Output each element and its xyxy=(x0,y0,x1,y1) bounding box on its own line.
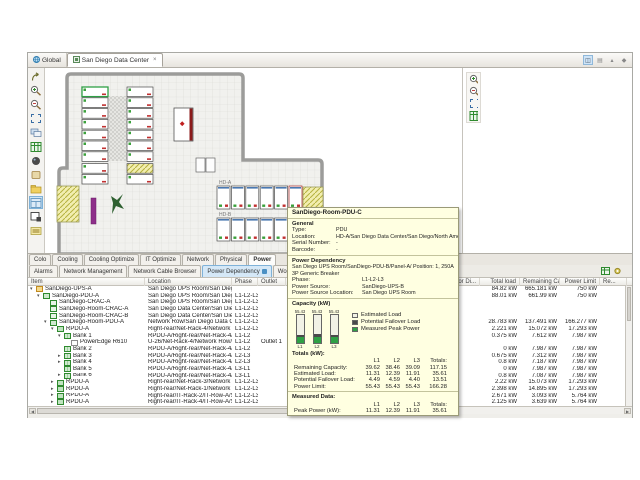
phase-cell: L1-L2-L3 xyxy=(232,399,258,406)
location-cell: San Diego UPS Room/San Diego/... xyxy=(145,293,232,300)
power-limit-cell: 7.987 kW xyxy=(560,366,600,373)
field-label: Serial Number: xyxy=(292,240,336,247)
vertical-scrollbar-thumb[interactable] xyxy=(627,287,631,321)
rack[interactable] xyxy=(82,87,108,97)
crac-icon xyxy=(50,306,57,312)
total-load-cell xyxy=(480,306,520,313)
remaining-ca-cell xyxy=(520,313,560,320)
outlet-cell xyxy=(258,299,286,306)
re-cell xyxy=(600,293,627,300)
phase-cell: L1-L2-L3 xyxy=(232,379,258,386)
rpdu-icon xyxy=(57,386,64,392)
tab-label: Global xyxy=(42,57,61,64)
layout-icon[interactable] xyxy=(29,196,43,209)
bank-icon xyxy=(64,373,71,379)
close-tab-icon[interactable]: × xyxy=(153,57,157,63)
row-label-hda: HD-A xyxy=(219,180,232,186)
item-cell: ▾SanDiego-UPS-A xyxy=(28,286,145,293)
field-value: - xyxy=(336,247,338,254)
rack[interactable] xyxy=(246,218,259,241)
power-limit-cell: 7.987 kW xyxy=(560,359,600,366)
rack[interactable] xyxy=(231,186,244,209)
tag-icon[interactable] xyxy=(29,168,43,181)
item-label: SanDiego-Room-PDU-A xyxy=(59,319,124,326)
rack[interactable] xyxy=(231,218,244,241)
re-cell xyxy=(600,386,627,393)
outlet-cell xyxy=(258,386,286,393)
busway-strip xyxy=(91,198,96,224)
category-tab-cooling[interactable]: Cooling xyxy=(52,254,82,265)
rack[interactable] xyxy=(82,164,108,174)
outlet-cell xyxy=(258,399,286,406)
remaining-ca-cell: 7.187 kW xyxy=(520,359,560,366)
item-cell: PowerEdge R610 xyxy=(28,339,145,346)
tooltip-field: Type:PDU xyxy=(292,227,454,234)
field-value: L1-L2-L3 xyxy=(362,277,384,284)
location-cell: Right-rear/IT-Rack-2/IT-Row-A/Sa... xyxy=(145,393,232,400)
mini-cell: 35.61 xyxy=(420,408,447,414)
field-label: Location: xyxy=(292,234,336,241)
total-load-cell: 88.01 kW xyxy=(480,293,520,300)
outlet-cell xyxy=(258,286,286,293)
phase-cell: L1-L2 xyxy=(232,333,258,340)
rack[interactable] xyxy=(82,109,108,119)
outlet-cell xyxy=(258,319,286,326)
item-cell: ▸Bank 4 xyxy=(28,359,145,366)
vertical-scrollbar[interactable] xyxy=(625,286,632,406)
rpdu-icon xyxy=(57,326,64,332)
rack[interactable] xyxy=(82,141,108,151)
phase-cell xyxy=(232,286,258,293)
capacity-gauge-l3: 55.43L3 xyxy=(328,309,340,350)
remaining-ca-cell: 137.491 kW xyxy=(520,319,560,326)
zoom-in-icon[interactable] xyxy=(29,84,43,97)
remaining-ca-cell: 7.987 kW xyxy=(520,366,560,373)
minimap-toolbar xyxy=(466,72,481,123)
legend-label: Estimated Load xyxy=(361,312,401,319)
item-label: Bank 5 xyxy=(73,366,92,373)
view-controls: ◫ ▤ ▴ ◆ xyxy=(583,55,629,65)
zoom-fit-icon[interactable] xyxy=(29,112,43,125)
rack[interactable] xyxy=(275,218,288,241)
re-cell xyxy=(600,359,627,366)
rack[interactable] xyxy=(127,164,153,174)
tooltip-section-capacity: Capacity (kW) xyxy=(292,301,454,308)
tooltip: SanDiego-Room-PDU-C General Type:PDULoca… xyxy=(287,207,459,416)
mini-cell: 55.43 xyxy=(380,384,400,390)
category-tab-power[interactable]: Power xyxy=(248,254,276,265)
re-cell xyxy=(600,346,627,353)
legend-label: Potential Failover Load xyxy=(361,319,420,326)
zoom-in-icon[interactable] xyxy=(468,74,479,85)
item-cell: SanDiego-CRAC-A xyxy=(28,299,145,306)
field-label: Phase: xyxy=(292,277,362,284)
ups-icon xyxy=(36,286,43,292)
outlet-cell xyxy=(258,346,286,353)
phase-cell: L1-L2-L3 xyxy=(232,299,258,306)
re-cell xyxy=(600,306,627,313)
total-load-cell: 2.398 kW xyxy=(480,386,520,393)
remaining-ca-cell: 7.087 kW xyxy=(520,373,560,380)
rack[interactable] xyxy=(260,218,273,241)
field-label: Power Source: xyxy=(292,284,362,291)
location-cell: San Diego Data Center/San Diego/... xyxy=(145,306,232,313)
phase-cell: L2-L3 xyxy=(232,353,258,360)
tab-global[interactable]: Global xyxy=(28,53,67,67)
pin-icon[interactable] xyxy=(262,269,267,274)
item-cell: ▾SanDiego-Room-PDU-A xyxy=(28,319,145,326)
item-cell: ▾RPDU-A xyxy=(28,326,145,333)
total-load-cell: 2.125 kW xyxy=(480,399,520,406)
measured-data-table: L1L2L3Totals:Peak Power (kW):11.3112.391… xyxy=(294,402,454,415)
re-cell xyxy=(600,379,627,386)
location-cell: Right-rear/Net-Rack-1/Network R... xyxy=(145,386,232,393)
crac-unit[interactable] xyxy=(174,108,193,141)
rack[interactable] xyxy=(217,218,230,241)
tooltip-field: Location:HD-A/San Diego Data Center/San … xyxy=(292,234,454,241)
item-label: Bank 6 xyxy=(73,373,92,380)
tooltip-section-totals: Totals (kW): xyxy=(292,351,454,358)
view-tab-network-management[interactable]: Network Management xyxy=(59,265,128,277)
category-tab-network[interactable]: Network xyxy=(182,254,214,265)
outlet-cell: Outlet 1 xyxy=(258,339,286,346)
item-label: PowerEdge R610 xyxy=(80,339,127,346)
legend-item: Estimated Load xyxy=(352,312,420,319)
outlet-cell xyxy=(258,306,286,313)
minimize-icon[interactable]: ▴ xyxy=(607,55,617,65)
filter-icon[interactable] xyxy=(29,154,43,167)
outlet-cell xyxy=(258,313,286,320)
total-load-cell xyxy=(480,339,520,346)
crac-icon xyxy=(50,300,57,306)
item-cell: ▸RPDU-A xyxy=(28,399,145,406)
tooltip-field: Phase:L1-L2-L3 xyxy=(292,277,454,284)
bank-icon xyxy=(64,333,71,339)
phase-cell: L1-L2 xyxy=(232,339,258,346)
column-header-location[interactable]: Location xyxy=(145,278,232,286)
item-cell: ▾Bank 1 xyxy=(28,333,145,340)
re-cell xyxy=(600,393,627,400)
rack[interactable] xyxy=(127,87,153,97)
view-layout-icon[interactable]: ◫ xyxy=(583,55,593,65)
rack[interactable] xyxy=(82,174,108,184)
item-cell: Bank 5 xyxy=(28,366,145,373)
phase-cell: L1-L2-L3 xyxy=(232,326,258,333)
bank-icon xyxy=(64,353,71,359)
power-limit-cell: 750 kW xyxy=(560,286,600,293)
item-cell: ▸RPDU-A xyxy=(28,393,145,400)
breaker-path: San Diego UPS Room/SanDiego-PDU-B/Panel-… xyxy=(292,264,454,277)
total-load-cell: 0 kW xyxy=(480,366,520,373)
remaining-ca-cell xyxy=(520,339,560,346)
tooltip-field: Power Source:SanDiego-UPS-B xyxy=(292,284,454,291)
rack[interactable] xyxy=(246,186,259,209)
capacity-gauge-l1: 55.43L1 xyxy=(294,309,306,350)
item-label: RPDU-A xyxy=(66,326,89,333)
outlet-cell xyxy=(258,333,286,340)
remaining-ca-cell: 15.072 kW xyxy=(520,326,560,333)
rack[interactable] xyxy=(82,98,108,108)
editor-tab-bar: GlobalSan Diego Data Center× ◫ ▤ ▴ ◆ xyxy=(28,53,632,68)
item-label: Bank 2 xyxy=(73,346,92,353)
column-header-outlet[interactable]: Outlet xyxy=(258,278,286,286)
export-icon[interactable] xyxy=(29,182,43,195)
location-cell: RPDU-A/Right-rear/Net-Rack-4/N... xyxy=(145,366,232,373)
tooltip-field: Serial Number:- xyxy=(292,240,454,247)
phase-cell: L1-L2-L3 xyxy=(232,386,258,393)
rack[interactable] xyxy=(127,174,153,184)
location-cell: RPDU-A/Right-rear/Net-Rack-4/N... xyxy=(145,333,232,340)
rack[interactable] xyxy=(127,109,153,119)
column-header-remaining-ca[interactable]: Remaining Ca... xyxy=(520,278,560,286)
rack[interactable] xyxy=(82,119,108,129)
phase-cell: L1-L2-L3 xyxy=(232,319,258,326)
item-label: RPDU-A xyxy=(66,379,89,386)
tab-label: San Diego Data Center xyxy=(82,57,149,64)
category-tab-it-optimize[interactable]: IT Optimize xyxy=(140,254,181,265)
mini-cell: 11.31 xyxy=(360,408,380,414)
layers-icon[interactable] xyxy=(29,126,43,139)
item-label: SanDiego-PDU-A xyxy=(52,293,99,300)
rack[interactable] xyxy=(127,119,153,129)
total-load-cell: 2.22 kW xyxy=(480,379,520,386)
location-cell: Right-rear/Net-Rack-3/Network R... xyxy=(145,379,232,386)
rack[interactable] xyxy=(82,130,108,140)
total-load-cell xyxy=(480,313,520,320)
power-limit-cell: 750 kW xyxy=(560,293,600,300)
power-limit-cell: 17.293 kW xyxy=(560,326,600,333)
legend-swatch xyxy=(352,313,358,318)
rack[interactable] xyxy=(127,130,153,140)
phase-cell: L2-L3 xyxy=(232,359,258,366)
legend-item: Measured Peak Power xyxy=(352,326,420,333)
remaining-ca-cell: 665.181 kW xyxy=(520,286,560,293)
pdu-icon xyxy=(50,320,57,326)
power-limit-cell: 7.987 kW xyxy=(560,373,600,380)
field-label: Barcode: xyxy=(292,247,336,254)
location-cell: San Diego UPS Room/San Diego/... xyxy=(145,286,232,293)
view-tab-alarms[interactable]: Alarms xyxy=(29,265,58,277)
total-load-cell: 0.8 kW xyxy=(480,373,520,380)
rack[interactable] xyxy=(275,186,288,209)
rack[interactable] xyxy=(82,152,108,162)
tooltip-section-power-dependency: Power Dependency xyxy=(292,258,454,265)
pdu-highlight-hda[interactable] xyxy=(303,187,323,208)
field-value: San Diego UPS Room xyxy=(362,290,416,297)
location-cell: U-26/Net-Rack-4/Network Row/Sa... xyxy=(145,339,232,346)
select-icon[interactable] xyxy=(29,70,43,83)
power-limit-cell: 17.293 kW xyxy=(560,386,600,393)
outlet-cell xyxy=(258,366,286,373)
re-cell xyxy=(600,286,627,293)
location-cell: RPDU-A/Right-rear/Net-Rack-4/N... xyxy=(145,353,232,360)
re-cell xyxy=(600,299,627,306)
capacity-gauge-l2: 55.43L2 xyxy=(311,309,323,350)
outlet-cell xyxy=(258,359,286,366)
rack[interactable] xyxy=(289,186,302,209)
location-cell: Right-rear/Net-Rack-4/Network R... xyxy=(145,326,232,333)
tooltip-field: Barcode:- xyxy=(292,247,454,254)
rack[interactable] xyxy=(127,152,153,162)
power-limit-cell: 7.987 kW xyxy=(560,346,600,353)
field-value: HD-A/San Diego Data Center/San Diego/Nor… xyxy=(336,234,459,241)
tooltip-title: SanDiego-Room-PDU-C xyxy=(292,210,454,217)
column-header-re[interactable]: Re... xyxy=(600,278,627,286)
item-label: RPDU-A xyxy=(66,393,89,400)
pdu-icon xyxy=(43,293,50,299)
power-limit-cell: 5.764 kW xyxy=(560,399,600,406)
total-load-cell: 0 kW xyxy=(480,346,520,353)
tab-san-diego-data-center[interactable]: San Diego Data Center× xyxy=(67,53,163,67)
power-limit-cell: 5.764 kW xyxy=(560,393,600,400)
location-cell: Right-rear/IT-Rack-4/IT-Row-A/Sa... xyxy=(145,399,232,406)
re-cell xyxy=(600,319,627,326)
mini-row-label: Peak Power (kW): xyxy=(294,408,360,414)
location-cell: Network Row/San Diego Data Cen... xyxy=(145,319,232,326)
outlet-cell xyxy=(258,379,286,386)
zoom-out-icon[interactable] xyxy=(468,86,479,97)
table-view-icon[interactable] xyxy=(468,110,479,121)
power-limit-cell: 7.987 kW xyxy=(560,333,600,340)
legend-swatch xyxy=(352,320,358,325)
secondary-view-panel xyxy=(462,68,632,253)
capacity-legend: Estimated LoadPotential Failover LoadMea… xyxy=(352,312,420,350)
frame-icon[interactable] xyxy=(29,210,43,223)
phase-cell: L1-L2-L3 xyxy=(232,313,258,320)
location-cell: RPDU-A/Right-rear/Net-Rack-4/N... xyxy=(145,359,232,366)
power-limit-cell xyxy=(560,313,600,320)
pdu-highlight-left[interactable] xyxy=(57,186,79,222)
gauge-phase-label: L1 xyxy=(297,344,302,350)
item-cell: SanDiego-Room-CRAC-B xyxy=(28,313,145,320)
phase-cell: L1-L2 xyxy=(232,346,258,353)
outlet-cell xyxy=(258,293,286,300)
bank-icon xyxy=(64,346,71,352)
remaining-ca-cell: 7.612 kW xyxy=(520,333,560,340)
map-toolbar xyxy=(28,68,45,253)
field-value: - xyxy=(336,240,338,247)
category-tab-cooling-optimize[interactable]: Cooling Optimize xyxy=(84,254,140,265)
total-load-cell: 28.783 kW xyxy=(480,319,520,326)
total-load-cell: 2.221 kW xyxy=(480,326,520,333)
power-limit-cell xyxy=(560,339,600,346)
category-tab-physical[interactable]: Physical xyxy=(215,254,247,265)
remaining-ca-cell: 661.99 kW xyxy=(520,293,560,300)
server-icon xyxy=(71,340,78,346)
rack[interactable] xyxy=(127,141,153,151)
phase-cell: L1-L2-L3 xyxy=(232,393,258,400)
tooltip-section-general: General xyxy=(292,221,454,228)
item-cell: ▸RPDU-A xyxy=(28,386,145,393)
legend-icon[interactable] xyxy=(29,224,43,237)
phase-cell: L3-L1 xyxy=(232,366,258,373)
column-header-phase[interactable]: Phase xyxy=(232,278,258,286)
tooltip-section-measured: Measured Data: xyxy=(292,394,454,401)
power-limit-cell xyxy=(560,306,600,313)
location-cell: San Diego Data Center/San Diego/... xyxy=(145,313,232,320)
rpdu-icon xyxy=(57,380,64,386)
item-label: SanDiego-UPS-A xyxy=(45,286,92,293)
mini-cell: 55.43 xyxy=(360,384,380,390)
measured-peak-fill xyxy=(331,337,338,343)
globe-icon xyxy=(33,56,40,65)
field-label: Power Source Location: xyxy=(292,290,362,297)
remaining-ca-cell: 15.073 kW xyxy=(520,379,560,386)
table-export-icon[interactable] xyxy=(601,267,610,275)
table-view-icon[interactable] xyxy=(29,140,43,153)
re-cell xyxy=(600,326,627,333)
legend-swatch xyxy=(352,327,358,332)
column-header-total-load[interactable]: Total load xyxy=(480,278,520,286)
re-cell xyxy=(600,373,627,380)
total-load-cell: 0.8 kW xyxy=(480,359,520,366)
zoom-out-icon[interactable] xyxy=(29,98,43,111)
cold-aisle-hatch xyxy=(109,96,127,161)
remaining-ca-cell: 7.987 kW xyxy=(520,346,560,353)
rack[interactable] xyxy=(217,186,230,209)
measured-peak-fill xyxy=(297,337,304,343)
total-load-cell xyxy=(480,299,520,306)
zoom-fit-icon[interactable] xyxy=(468,98,479,109)
item-label: Bank 1 xyxy=(73,333,92,340)
measured-peak-fill xyxy=(314,337,321,344)
column-header-power-limit[interactable]: Power Limit xyxy=(560,278,600,286)
remaining-ca-cell xyxy=(520,299,560,306)
row-label-hdb: HD-B xyxy=(219,212,232,218)
location-cell: San Diego UPS Room/San Diego/... xyxy=(145,299,232,306)
re-cell xyxy=(600,313,627,320)
bank-icon xyxy=(64,360,71,366)
item-cell: Bank 2 xyxy=(28,346,145,353)
remaining-ca-cell: 3.093 kW xyxy=(520,393,560,400)
maximize-icon[interactable]: ◆ xyxy=(619,55,629,65)
outlet-cell xyxy=(258,373,286,380)
view-tab-network-cable-browser[interactable]: Network Cable Browser xyxy=(128,265,201,277)
re-cell xyxy=(600,399,627,406)
item-label: SanDiego-CRAC-A xyxy=(59,299,110,306)
total-load-cell: 0.375 kW xyxy=(480,333,520,340)
rack[interactable] xyxy=(260,186,273,209)
item-cell: ▸RPDU-A xyxy=(28,379,145,386)
remaining-ca-cell: 3.639 kW xyxy=(520,399,560,406)
field-value: SanDiego-UPS-B xyxy=(362,284,404,291)
re-cell xyxy=(600,339,627,346)
view-tab-power-dependency[interactable]: Power Dependency xyxy=(202,265,271,277)
settings-icon[interactable] xyxy=(613,267,622,275)
power-limit-cell xyxy=(560,299,600,306)
gauge-phase-label: L3 xyxy=(331,344,336,350)
field-value: PDU xyxy=(336,227,347,234)
item-label: Bank 4 xyxy=(73,359,92,366)
power-limit-cell: 7.987 kW xyxy=(560,353,600,360)
rpdu-icon xyxy=(57,399,64,405)
location-cell: RPDU-A/Right-rear/Net-Rack-4/N... xyxy=(145,373,232,380)
phase-cell: L1-L2-L3 xyxy=(232,293,258,300)
rack[interactable] xyxy=(127,98,153,108)
power-limit-cell: 166.277 kW xyxy=(560,319,600,326)
crac-icon xyxy=(50,313,57,319)
total-load-cell: 2.671 kW xyxy=(480,393,520,400)
re-cell xyxy=(600,366,627,373)
category-tab-colo[interactable]: Colo xyxy=(29,254,51,265)
phase-cell: L1-L2-L3 xyxy=(232,306,258,313)
item-label: RPDU-A xyxy=(66,399,89,406)
column-header-item[interactable]: Item xyxy=(28,278,145,286)
mini-cell: 166.28 xyxy=(420,384,447,390)
outlet-cell xyxy=(258,326,286,333)
item-cell: ▾SanDiego-PDU-A xyxy=(28,293,145,300)
view-list-icon[interactable]: ▤ xyxy=(595,55,605,65)
